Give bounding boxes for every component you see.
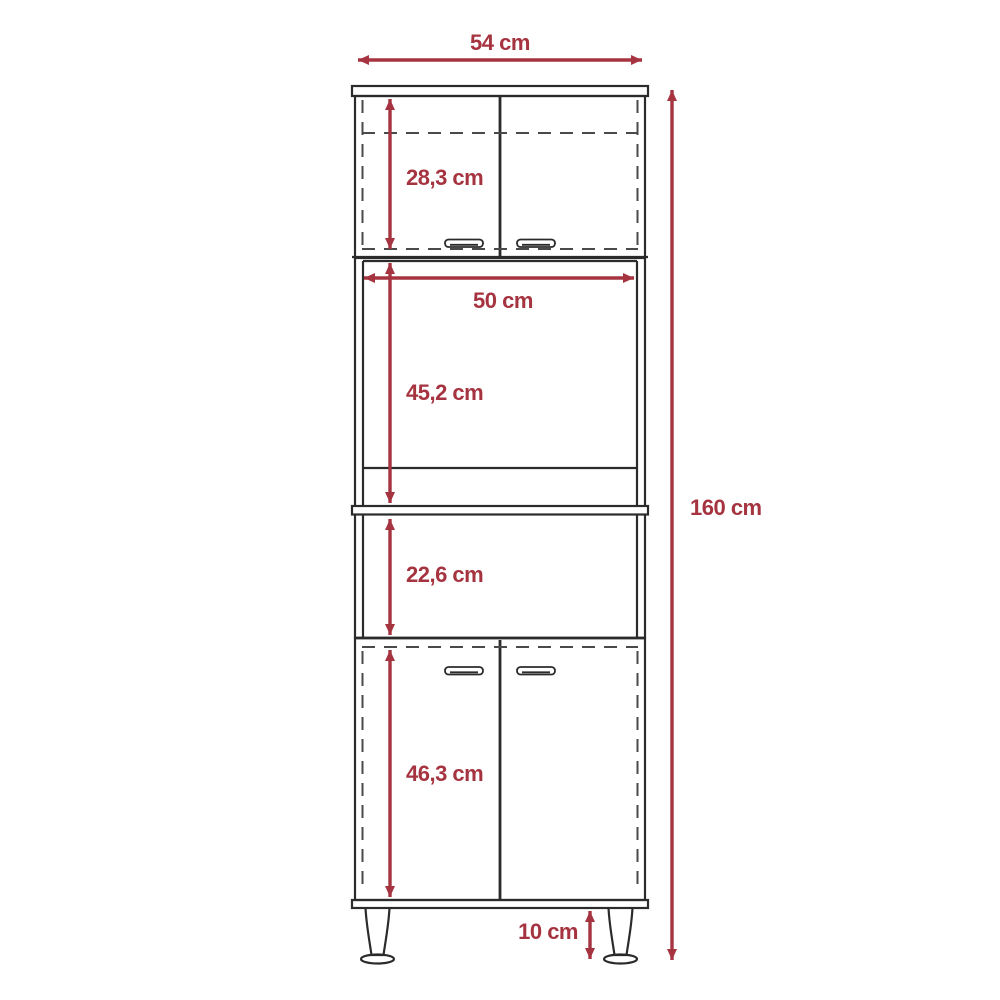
dimension-annotations: 54 cm 28,3 cm 50 cm 45,2 cm 160 cm 22,6	[358, 30, 762, 960]
top-panel	[352, 86, 648, 96]
dimension-overall-height: 160 cm	[672, 90, 762, 960]
dimension-label-leg-height: 10 cm	[518, 919, 578, 944]
left-leg	[366, 908, 390, 955]
dimension-upper-cabinet-height: 28,3 cm	[390, 99, 483, 249]
dimension-leg-height: 10 cm	[518, 911, 590, 959]
dimension-open-shelf-height: 22,6 cm	[390, 519, 483, 635]
dimension-overall-width: 54 cm	[358, 30, 642, 60]
cabinet-dimension-diagram: 54 cm 28,3 cm 50 cm 45,2 cm 160 cm 22,6	[0, 0, 1000, 1000]
dimension-label-microwave-space-height: 45,2 cm	[406, 380, 483, 405]
cabinet-legs	[361, 908, 637, 964]
open-shelf-section	[355, 515, 645, 639]
dimension-lower-cabinet-height: 46,3 cm	[390, 650, 483, 897]
middle-shelf-band	[352, 506, 648, 515]
dimension-label-inner-width: 50 cm	[473, 288, 533, 313]
handle-icon	[517, 240, 555, 248]
handle-icon	[445, 240, 483, 248]
dimension-label-lower-cabinet-height: 46,3 cm	[406, 761, 483, 786]
handle-icon	[445, 667, 483, 675]
upper-cabinet	[355, 96, 645, 258]
lower-cabinet	[355, 638, 645, 900]
handle-icon	[517, 667, 555, 675]
dimension-label-overall-height: 160 cm	[690, 495, 762, 520]
cabinet-outline	[352, 86, 648, 964]
right-leg	[609, 908, 633, 955]
dimension-inner-width: 50 cm	[364, 278, 634, 313]
dimension-label-upper-cabinet-height: 28,3 cm	[406, 165, 483, 190]
diagram-canvas: 54 cm 28,3 cm 50 cm 45,2 cm 160 cm 22,6	[0, 0, 1000, 1000]
dimension-label-open-shelf-height: 22,6 cm	[406, 562, 483, 587]
dimension-label-overall-width: 54 cm	[470, 30, 530, 55]
base-panel	[352, 900, 648, 908]
